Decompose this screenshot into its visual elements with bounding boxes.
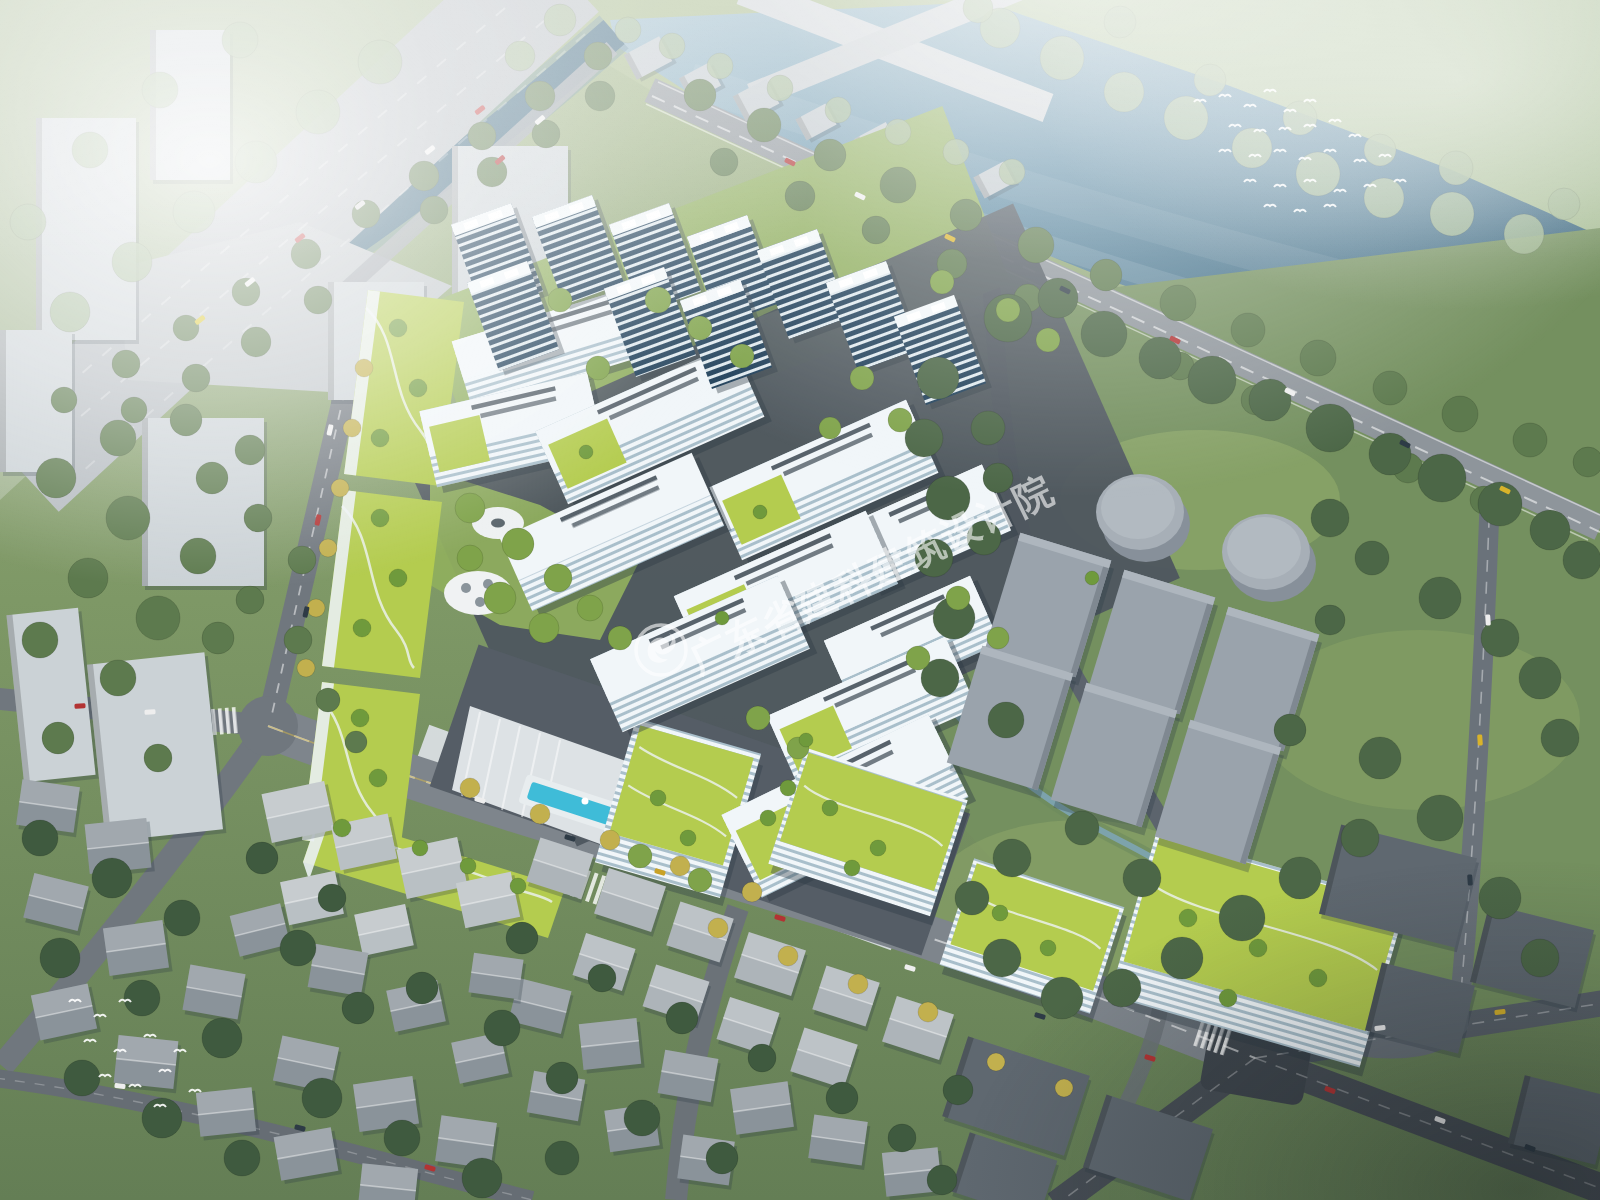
tree xyxy=(624,1100,660,1136)
tree xyxy=(628,844,652,868)
tree xyxy=(650,790,666,806)
tree xyxy=(992,905,1008,921)
tree xyxy=(918,1002,938,1022)
tree xyxy=(40,938,80,978)
tree xyxy=(307,599,325,617)
tree xyxy=(546,1062,578,1094)
car xyxy=(1477,734,1483,745)
tree xyxy=(144,744,172,772)
pitched-house xyxy=(657,1050,721,1107)
car xyxy=(1485,614,1491,625)
tree xyxy=(1417,795,1463,841)
tree xyxy=(608,626,632,650)
tree xyxy=(670,856,690,876)
tree xyxy=(1274,714,1306,746)
tree xyxy=(760,810,776,826)
tree xyxy=(333,819,351,837)
tree xyxy=(246,842,278,874)
tree xyxy=(848,974,868,994)
top-haze xyxy=(0,0,1600,260)
tree xyxy=(202,1018,242,1058)
tree xyxy=(943,1075,973,1105)
tree xyxy=(124,980,160,1016)
pitched-house xyxy=(730,1081,797,1139)
tree xyxy=(389,569,407,587)
pitched-house xyxy=(579,1018,645,1074)
tree xyxy=(1315,605,1345,635)
tree xyxy=(136,596,180,640)
tree xyxy=(316,688,340,712)
tree xyxy=(42,722,74,754)
tree xyxy=(22,622,58,658)
tree xyxy=(529,613,559,643)
tree xyxy=(888,1124,916,1152)
tree xyxy=(588,964,616,992)
tree xyxy=(224,1140,260,1176)
tree xyxy=(1341,819,1379,857)
pavilion-skylight xyxy=(475,597,485,607)
tree xyxy=(236,586,264,614)
tree xyxy=(284,626,312,654)
tree xyxy=(506,922,538,954)
aerial-rendering: 广东省建科建筑设计院 xyxy=(0,0,1600,1200)
tree xyxy=(545,1141,579,1175)
car xyxy=(144,709,155,715)
tree xyxy=(345,731,367,753)
tree xyxy=(462,1158,502,1198)
tree xyxy=(1040,940,1056,956)
tree xyxy=(799,733,813,747)
tree xyxy=(544,564,572,592)
tree xyxy=(688,868,712,892)
tree xyxy=(92,858,132,898)
tree xyxy=(780,780,796,796)
tree xyxy=(297,659,315,677)
tree xyxy=(1355,541,1389,575)
tree xyxy=(666,1002,698,1034)
tree xyxy=(164,900,200,936)
tree xyxy=(1085,571,1099,585)
tree xyxy=(870,840,886,856)
tree xyxy=(1359,737,1401,779)
pitched-house xyxy=(182,964,249,1023)
tree xyxy=(680,830,696,846)
aerial-rendering-stage: 广东省建科建筑设计院 xyxy=(0,0,1600,1200)
car xyxy=(74,703,85,709)
tree xyxy=(412,840,428,856)
pavilion-skylight xyxy=(461,583,471,593)
tree xyxy=(1563,541,1600,579)
tree xyxy=(706,1142,738,1174)
tree xyxy=(753,505,767,519)
tree xyxy=(988,702,1024,738)
pitched-house xyxy=(196,1087,260,1141)
tree xyxy=(742,882,762,902)
tree xyxy=(826,1082,858,1114)
tree xyxy=(1541,719,1579,757)
pitched-house xyxy=(357,1163,421,1200)
tree xyxy=(927,1165,957,1195)
tree xyxy=(302,1078,342,1118)
tree xyxy=(351,709,369,727)
tree xyxy=(987,627,1009,649)
tree xyxy=(510,878,526,894)
tree xyxy=(202,622,234,654)
tree xyxy=(708,918,728,938)
tree xyxy=(844,860,860,876)
tree xyxy=(577,595,603,621)
tree xyxy=(342,992,374,1024)
tree xyxy=(1123,859,1161,897)
tree xyxy=(993,839,1031,877)
pitched-house xyxy=(103,920,173,980)
tree xyxy=(1418,454,1466,502)
tree xyxy=(778,946,798,966)
tree xyxy=(946,586,970,610)
tree xyxy=(1519,657,1561,699)
tree xyxy=(369,769,387,787)
tree xyxy=(983,939,1021,977)
tree xyxy=(955,881,989,915)
tree xyxy=(460,778,480,798)
tree xyxy=(1419,577,1461,619)
tree xyxy=(64,1060,100,1096)
tree xyxy=(746,706,770,730)
tree xyxy=(100,660,136,696)
tree xyxy=(748,1044,776,1072)
tree xyxy=(906,646,930,670)
tree xyxy=(406,972,438,1004)
tree xyxy=(280,930,316,966)
tree xyxy=(1065,811,1099,845)
pool-sculpture xyxy=(582,798,589,805)
tree xyxy=(1513,423,1547,457)
tree xyxy=(484,1010,520,1046)
tree xyxy=(460,858,476,874)
tree xyxy=(530,804,550,824)
tree xyxy=(318,884,346,912)
pitched-house xyxy=(808,1114,871,1169)
tree xyxy=(353,619,371,637)
tree xyxy=(600,830,620,850)
tree xyxy=(484,582,516,614)
tree xyxy=(384,1120,420,1156)
tree xyxy=(1530,510,1570,550)
tree xyxy=(22,820,58,856)
tree xyxy=(1311,499,1349,537)
tree xyxy=(1573,447,1600,477)
pitched-house xyxy=(468,953,527,1004)
tree xyxy=(822,800,838,816)
